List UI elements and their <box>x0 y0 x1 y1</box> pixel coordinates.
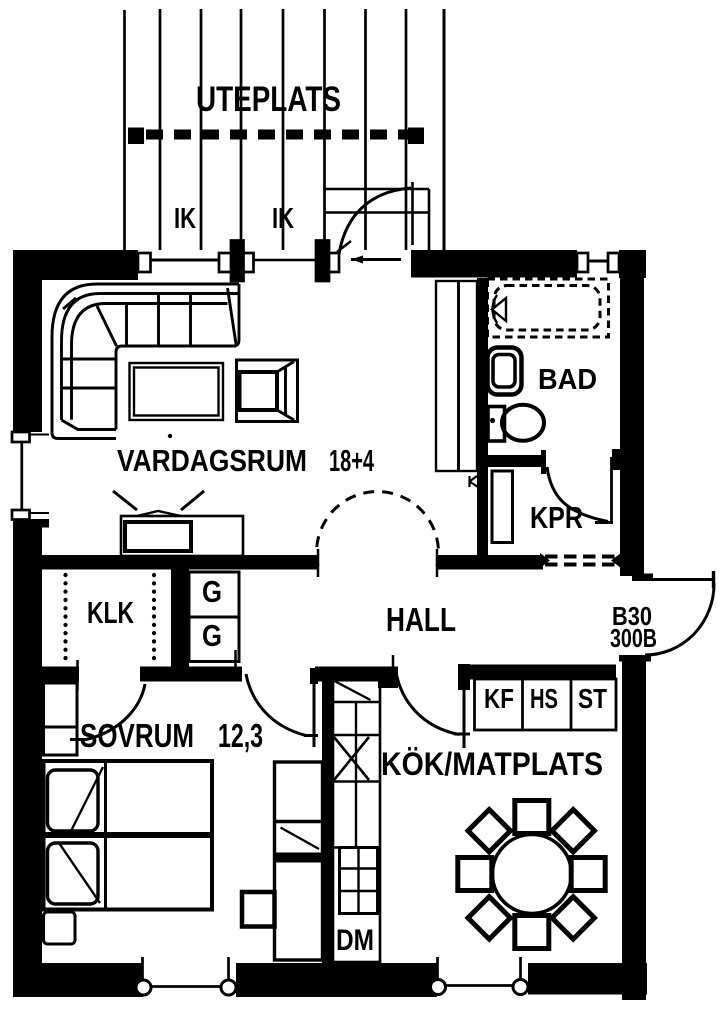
svg-text:UTEPLATS: UTEPLATS <box>196 80 341 119</box>
svg-text:G: G <box>202 618 222 653</box>
svg-text:18+4: 18+4 <box>329 443 374 478</box>
svg-text:300B: 300B <box>610 623 657 653</box>
svg-text:IK: IK <box>272 203 294 235</box>
svg-text:ST: ST <box>578 683 607 714</box>
svg-text:12,3: 12,3 <box>218 717 263 754</box>
svg-text:KLK: KLK <box>87 595 134 630</box>
svg-text:IK: IK <box>174 203 196 235</box>
svg-text:G: G <box>202 574 222 609</box>
svg-text:KPR: KPR <box>530 500 583 535</box>
svg-text:DM: DM <box>336 924 374 957</box>
svg-text:VARDAGSRUM: VARDAGSRUM <box>117 443 307 478</box>
svg-text:KÖK/MATPLATS: KÖK/MATPLATS <box>381 746 603 782</box>
svg-text:HS: HS <box>530 683 558 714</box>
svg-text:SOVRUM: SOVRUM <box>80 717 194 754</box>
svg-text:KF: KF <box>484 683 514 714</box>
svg-text:BAD: BAD <box>538 364 597 396</box>
svg-text:HALL: HALL <box>386 601 456 638</box>
